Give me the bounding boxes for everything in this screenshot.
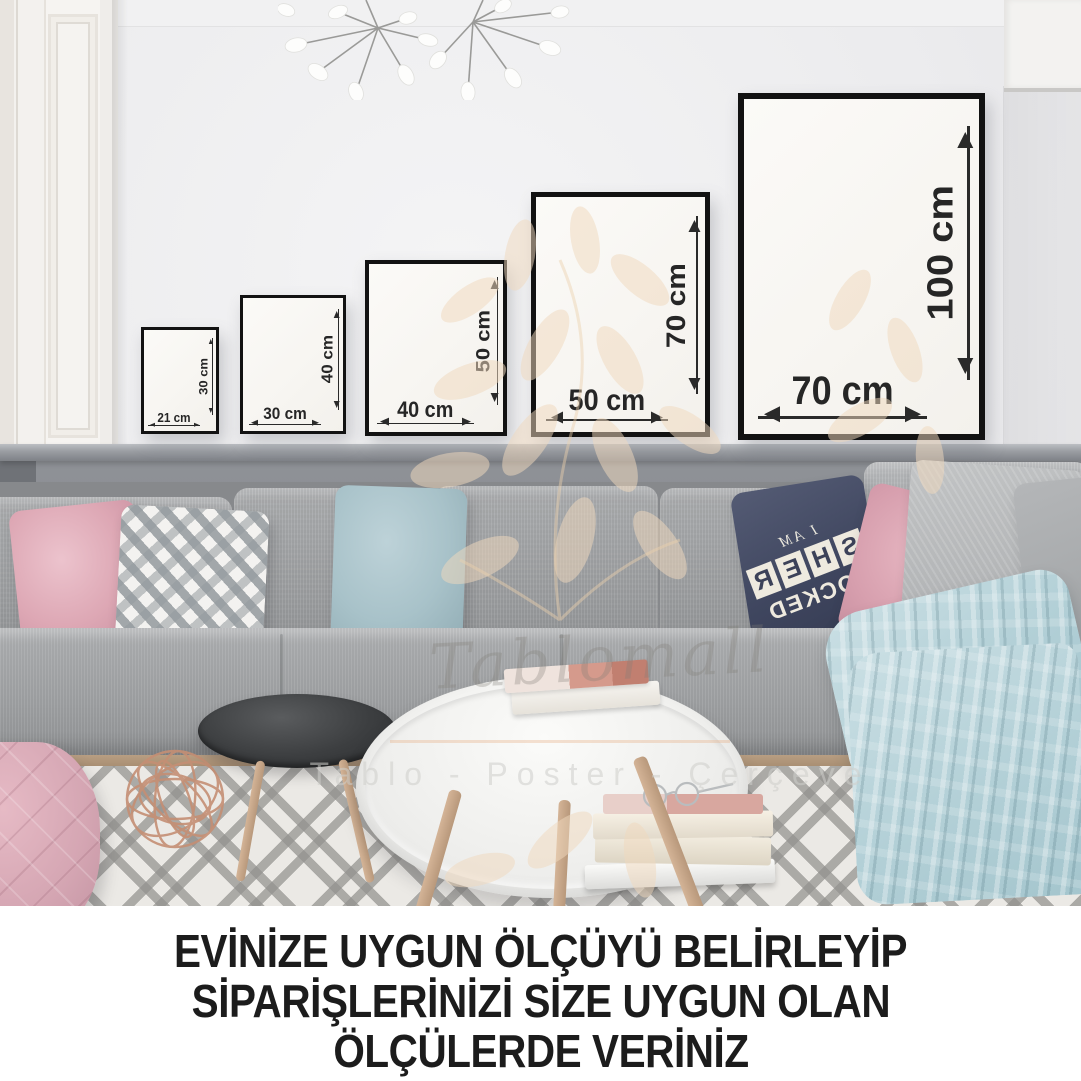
height-dimension: 40 cm [319,309,339,410]
width-dimension: 30 cm [249,405,321,425]
width-dimension: 21 cm [148,411,200,427]
height-dimension: 50 cm [472,277,498,405]
living-room-photo: 21 cm 30 cm 30 cm 40 cm 40 cm [0,0,1081,906]
height-arrow [967,126,970,381]
height-label: 70 cm [664,263,692,348]
width-arrow [249,424,321,425]
height-arrow [696,216,698,395]
width-arrow [148,425,200,426]
width-dimension: 70 cm [758,371,927,419]
height-arrow [497,277,498,405]
wall-right-shade [1003,86,1081,456]
width-arrow [758,416,927,419]
height-label: 50 cm [473,310,493,372]
wall-molding-groove [16,0,46,452]
product-size-guide-image: 21 cm 30 cm 30 cm 40 cm 40 cm [0,0,1081,1081]
height-label: 100 cm [923,185,960,321]
height-dimension: 70 cm [662,216,698,395]
poster-frame-50x70: 50 cm 70 cm [531,192,710,437]
poster-frame-30x40: 30 cm 40 cm [240,295,346,434]
crown-molding-right [1004,0,1081,92]
poster-frame-40x50: 40 cm 50 cm [365,260,507,436]
chandelier [278,0,578,100]
height-dimension: 30 cm [197,338,213,415]
caption-line-1: EVİNİZE UYGUN ÖLÇÜYÜ BELİRLEYİP [174,926,907,976]
width-arrow [546,419,668,421]
width-dimension: 40 cm [377,399,473,425]
height-arrow [212,338,213,415]
book [593,810,773,839]
poster-frame-21x30: 21 cm 30 cm [141,327,219,434]
light-blue-pillow [330,485,467,647]
caption-line-3: ÖLÇÜLERDE VERİNİZ [333,1026,748,1076]
caption-line-2: SİPARİŞLERİNİZİ SİZE UYGUN OLAN [191,976,890,1026]
height-label: 40 cm [320,335,336,383]
chair-rail [0,444,1081,461]
height-dimension: 100 cm [921,126,970,381]
wall-paneling-left [0,0,118,452]
width-label: 70 cm [767,371,919,412]
books-on-table [503,655,658,717]
wall-corner-shadow [112,0,128,452]
poster-frame-70x100: 70 cm 100 cm [738,93,985,440]
wall-pilaster [48,14,98,438]
height-label: 30 cm [198,358,210,395]
width-label: 50 cm [552,386,662,417]
sofa-back-cushion [434,486,658,650]
wire-sphere-decor [116,748,234,850]
height-arrow [338,309,339,410]
width-label: 30 cm [253,405,318,422]
knit-blanket-blue-drape [846,642,1081,906]
caption-band: EVİNİZE UYGUN ÖLÇÜYÜ BELİRLEYİP SİPARİŞL… [0,906,1081,1081]
width-dimension: 50 cm [546,386,668,422]
width-label: 21 cm [151,411,198,424]
width-arrow [377,423,473,424]
width-label: 40 cm [382,399,469,421]
